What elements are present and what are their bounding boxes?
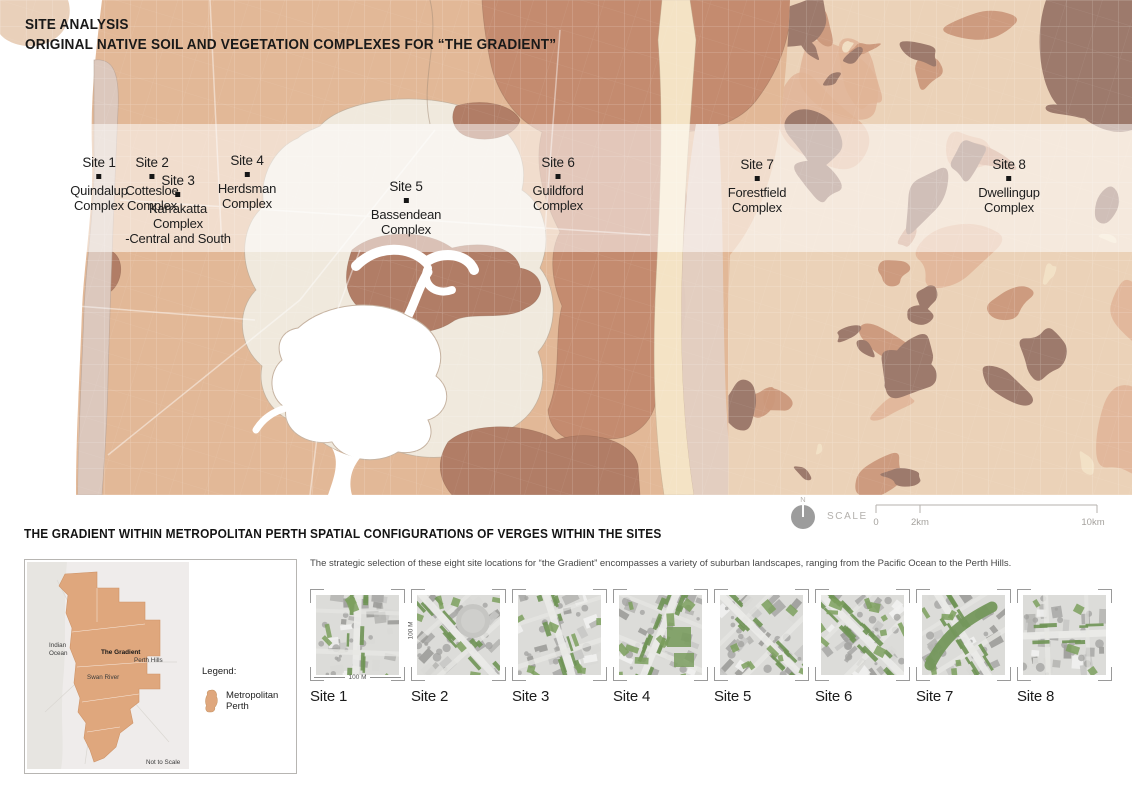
aerial-photo: [720, 595, 803, 675]
thumbnail-site-label: Site 5: [714, 688, 809, 705]
thumbnail-site-label: Site 1: [310, 688, 405, 705]
thumbnail-frame: [613, 589, 708, 681]
thumbnail-strip: 100 M100 MSite 1Site 2Site 3Site 4Site 5…: [310, 589, 1118, 705]
thumbnail-frame: [1017, 589, 1112, 681]
complex-name-line: Complex: [70, 198, 127, 213]
site-label-1: Site 1QuindalupComplex: [70, 155, 127, 213]
map-header: SITE ANALYSIS ORIGINAL NATIVE SOIL AND V…: [25, 15, 590, 55]
complex-name-line: Guildford: [533, 183, 584, 198]
site-number-label: Site 1: [70, 155, 127, 170]
scale-ruler: 0 2km 10km: [868, 501, 1108, 529]
verges-title: SPATIAL CONFIGURATIONS OF VERGES WITHIN …: [310, 527, 1078, 541]
site-number-label: Site 6: [533, 155, 584, 170]
site-number-label: Site 5: [371, 179, 441, 194]
thumbnail-site-label: Site 2: [411, 688, 506, 705]
verges-section: SPATIAL CONFIGURATIONS OF VERGES WITHIN …: [310, 527, 1118, 705]
swan-river-label: Swan River: [87, 674, 119, 681]
inset-legend: Legend: Metropolitan Perth: [202, 666, 296, 716]
thumbnail-frame: [815, 589, 910, 681]
verge-thumbnail-cell-8: Site 8: [1017, 589, 1112, 705]
thumbnail-frame: [714, 589, 809, 681]
complex-name-line: Quindalup: [70, 183, 127, 198]
thumbnail-site-label: Site 3: [512, 688, 607, 705]
legend-item-label: Metropolitan Perth: [226, 690, 296, 712]
page-subtitle: ORIGINAL NATIVE SOIL AND VEGETATION COMP…: [25, 35, 556, 55]
metropolitan-perth-swatch-icon: [202, 686, 220, 716]
inset-section: THE GRADIENT WITHIN METROPOLITAN PERTH I…: [24, 527, 296, 774]
complex-name-line: -Central and South: [125, 231, 231, 246]
thumbnail-site-label: Site 7: [916, 688, 1011, 705]
thumbnail-site-label: Site 4: [613, 688, 708, 705]
thumbnail-scale-bar: 100 M: [314, 674, 401, 681]
complex-name-line: Complex: [125, 216, 231, 231]
site-number-label: Site 8: [978, 157, 1040, 172]
site-label-4: Site 4HerdsmanComplex: [218, 153, 276, 211]
perth-hills-label: Perth Hills: [134, 657, 163, 664]
aerial-photo: [417, 595, 500, 675]
soil-vegetation-map: SITE ANALYSIS ORIGINAL NATIVE SOIL AND V…: [0, 0, 1132, 495]
thumbnail-site-label: Site 8: [1017, 688, 1112, 705]
aerial-photo: [619, 595, 702, 675]
verge-thumbnail-cell-4: Site 4: [613, 589, 708, 705]
legend-title: Legend:: [202, 666, 296, 677]
site-marker-icon: [97, 174, 102, 179]
complex-name-line: Dwellingup: [978, 185, 1040, 200]
site-label-8: Site 8DwellingupComplex: [978, 157, 1040, 215]
complex-name-line: Karrakatta: [125, 201, 231, 216]
verge-thumbnail-cell-1: 100 M100 MSite 1: [310, 589, 405, 705]
site-number-label: Site 3: [125, 173, 231, 188]
thumbnail-frame: [512, 589, 607, 681]
soil-map-graphic: [0, 0, 1132, 495]
complex-name-line: Complex: [533, 198, 584, 213]
thumbnail-site-label: Site 6: [815, 688, 910, 705]
verge-thumbnail-cell-2: Site 2: [411, 589, 506, 705]
site-label-3: Site 3KarrakattaComplex-Central and Sout…: [125, 173, 231, 246]
inset-title: THE GRADIENT WITHIN METROPOLITAN PERTH: [24, 527, 282, 541]
site-marker-icon: [176, 192, 181, 197]
compass-needle-icon: [802, 503, 804, 517]
site-number-label: Site 4: [218, 153, 276, 168]
poster: SITE ANALYSIS ORIGINAL NATIVE SOIL AND V…: [0, 0, 1132, 800]
inset-ocean: [27, 562, 67, 769]
thumbnail-frame: [916, 589, 1011, 681]
site-number-label: Site 2: [125, 155, 178, 170]
complex-name-line: Complex: [218, 196, 276, 211]
site-label-5: Site 5BassendeanComplex: [371, 179, 441, 237]
scale-label: SCALE: [827, 511, 868, 522]
indian-ocean-label-2: Ocean: [49, 650, 68, 657]
aerial-photo: [518, 595, 601, 675]
compass-dial: [791, 505, 815, 529]
complex-name-line: Herdsman: [218, 181, 276, 196]
the-gradient-label: The Gradient: [101, 649, 141, 656]
aerial-photo: [1023, 595, 1106, 675]
thumbnail-frame: [310, 589, 405, 681]
site-number-label: Site 7: [728, 157, 787, 172]
perth-inset-map: Indian Ocean The Gradient Perth Hills Sw…: [24, 559, 297, 774]
verges-description: The strategic selection of these eight s…: [310, 558, 1118, 569]
site-marker-icon: [555, 174, 560, 179]
verge-thumbnail-cell-5: Site 5: [714, 589, 809, 705]
thumbnail-scale-label: 100 M: [348, 674, 366, 681]
verge-thumbnail-cell-7: Site 7: [916, 589, 1011, 705]
page-title: SITE ANALYSIS: [25, 15, 556, 35]
aerial-photo: [922, 595, 1005, 675]
site-marker-icon: [1007, 176, 1012, 181]
perth-map-graphic: Indian Ocean The Gradient Perth Hills Sw…: [27, 562, 189, 769]
verge-thumbnail-cell-3: Site 3: [512, 589, 607, 705]
site-label-7: Site 7ForestfieldComplex: [728, 157, 787, 215]
north-compass-icon: N: [789, 496, 817, 529]
complex-name-line: Forestfield: [728, 185, 787, 200]
complex-name-line: Complex: [978, 200, 1040, 215]
not-to-scale-label: Not to Scale: [146, 759, 181, 766]
site-marker-icon: [245, 172, 250, 177]
indian-ocean-label: Indian: [49, 642, 67, 649]
site-label-6: Site 6GuildfordComplex: [533, 155, 584, 213]
aerial-photo: [821, 595, 904, 675]
thumbnail-frame: [411, 589, 506, 681]
site-marker-icon: [755, 176, 760, 181]
verge-thumbnail-cell-6: Site 6: [815, 589, 910, 705]
aerial-photo: [316, 595, 399, 675]
complex-name-line: Complex: [371, 222, 441, 237]
site-marker-icon: [404, 198, 409, 203]
complex-name-line: Bassendean: [371, 207, 441, 222]
complex-name-line: Complex: [728, 200, 787, 215]
